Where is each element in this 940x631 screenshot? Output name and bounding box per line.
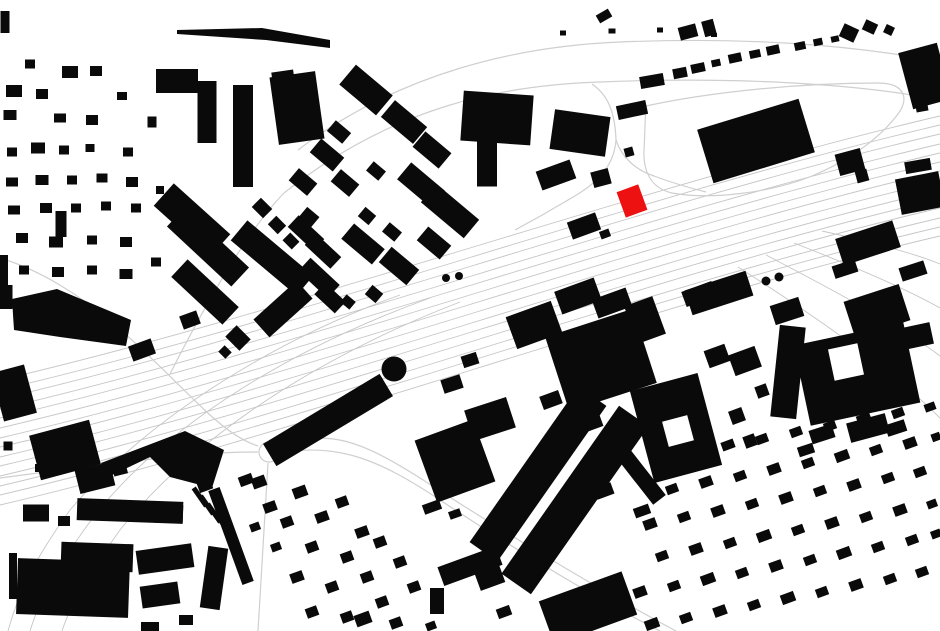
figure-ground-map [0, 0, 940, 631]
city-map [0, 0, 940, 631]
buildings [0, 9, 940, 631]
highlighted-building [617, 184, 648, 217]
